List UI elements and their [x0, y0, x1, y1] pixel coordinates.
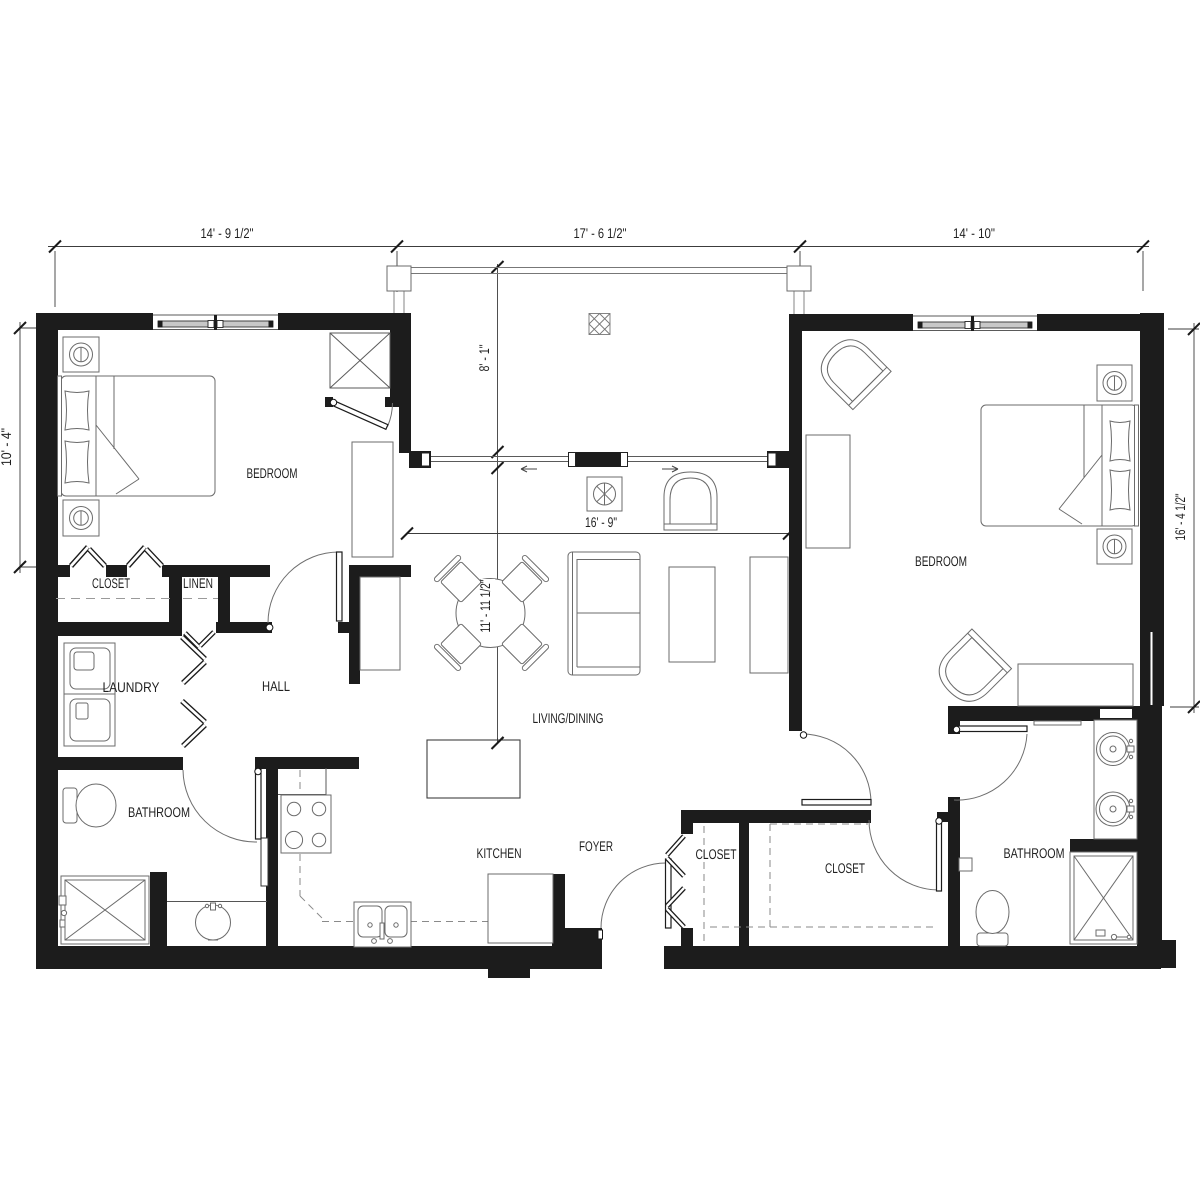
svg-text:8' - 1": 8' - 1"	[476, 344, 492, 371]
svg-text:LINEN: LINEN	[183, 575, 213, 591]
svg-text:CLOSET: CLOSET	[696, 846, 737, 862]
svg-text:BEDROOM: BEDROOM	[247, 465, 298, 481]
svg-text:BATHROOM: BATHROOM	[128, 804, 190, 820]
svg-text:LIVING/DINING: LIVING/DINING	[533, 710, 604, 726]
svg-text:BATHROOM: BATHROOM	[1004, 845, 1065, 861]
svg-text:14' - 9 1/2": 14' - 9 1/2"	[201, 225, 254, 241]
svg-text:16' - 9": 16' - 9"	[585, 514, 617, 530]
svg-text:10' - 4": 10' - 4"	[0, 428, 14, 466]
svg-text:CLOSET: CLOSET	[92, 575, 130, 591]
svg-text:17' - 6 1/2": 17' - 6 1/2"	[574, 225, 627, 241]
svg-text:16' - 4 1/2": 16' - 4 1/2"	[1172, 493, 1188, 540]
svg-text:FOYER: FOYER	[579, 838, 613, 854]
svg-text:BEDROOM: BEDROOM	[915, 553, 967, 569]
svg-text:LAUNDRY: LAUNDRY	[103, 679, 161, 695]
svg-text:11' - 11 1/2": 11' - 11 1/2"	[477, 579, 493, 632]
svg-text:CLOSET: CLOSET	[825, 860, 865, 876]
svg-text:HALL: HALL	[262, 678, 290, 694]
svg-text:KITCHEN: KITCHEN	[477, 845, 522, 861]
svg-text:14' - 10": 14' - 10"	[953, 225, 995, 241]
